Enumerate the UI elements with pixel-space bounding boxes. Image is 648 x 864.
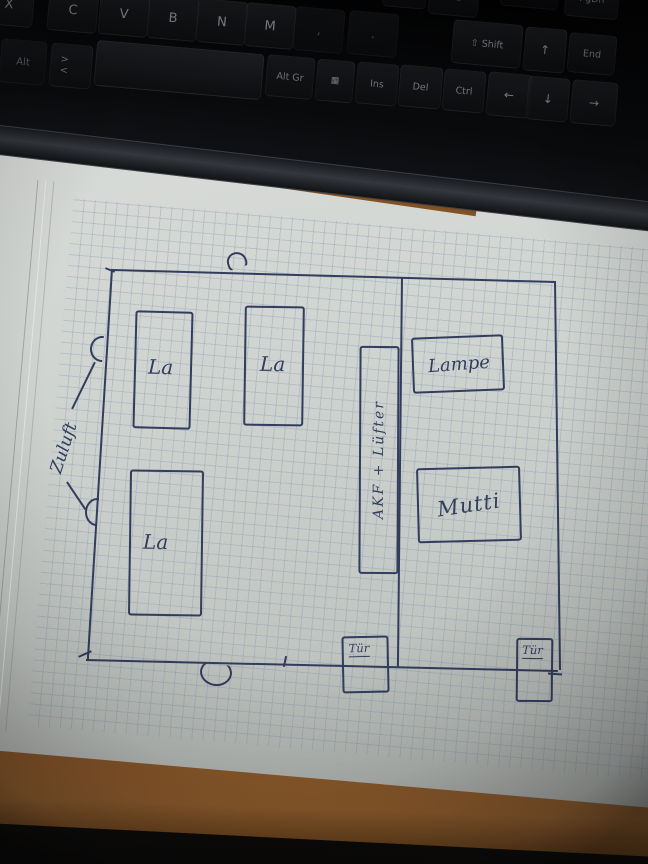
key-comma: ,: [292, 6, 346, 54]
akf-fan-label: AKF + Lüfter: [371, 400, 388, 519]
top-wall: [112, 269, 556, 283]
key-x-label: X: [4, 0, 14, 12]
key-ins-label: Ins: [370, 78, 385, 90]
key-shift-label: ⇧ Shift: [470, 37, 503, 51]
key-arrow-down: ↓: [525, 75, 571, 122]
key-arrow-up: ↑: [522, 26, 568, 73]
door-box-1: Tür: [341, 636, 389, 694]
photo-scene: Zuluft La La La AKF + Lüfter Lampe Mutti…: [0, 0, 648, 864]
key-b-label: B: [168, 10, 178, 26]
speaker-label-1: La: [148, 355, 174, 380]
key-x: X: [0, 0, 36, 28]
key-altgr-label: Alt Gr: [276, 70, 304, 83]
key-ins: Ins: [354, 61, 400, 107]
top-wall-loop: [224, 249, 249, 274]
arrow-up-icon: ↑: [539, 43, 550, 58]
key-alt: Alt: [0, 38, 48, 86]
key-altgr: Alt Gr: [264, 54, 315, 100]
key-angle-brackets: > <: [48, 42, 94, 89]
speaker-label-2: La: [260, 352, 286, 376]
supply-air-leader-lower: [66, 481, 86, 509]
arrow-left-icon: ←: [503, 88, 514, 103]
left-wall: [87, 269, 114, 659]
arrow-right-icon: →: [588, 96, 599, 111]
supply-air-vent-lower: [84, 497, 110, 527]
key-c: C: [46, 0, 100, 34]
key-ctrl: Ctrl: [441, 68, 487, 114]
bottom-wall-arrowhead: [78, 650, 92, 658]
mutti-label: Mutti: [436, 488, 502, 521]
speaker-box-2: La: [243, 306, 305, 427]
speaker-box-1: La: [132, 310, 193, 429]
key-del-label: Del: [412, 81, 429, 93]
key-a-umlaut-label: ä à: [446, 0, 462, 3]
supply-air-label: Zuluft: [40, 401, 87, 495]
less-than-glyph: <: [59, 65, 68, 77]
key-end: End: [566, 32, 617, 76]
key-end-label: End: [583, 48, 602, 61]
speaker-label-3: La: [143, 530, 169, 554]
mutti-box: Mutti: [416, 466, 522, 544]
key-shift: ⇧ Shift: [450, 19, 524, 69]
greater-than-glyph: >: [60, 54, 69, 66]
key-n: N: [195, 0, 249, 46]
key-v-label: V: [119, 6, 129, 22]
door-label-1: Tür: [349, 641, 370, 657]
key-alt-label: Alt: [16, 56, 30, 68]
key-c-label: C: [68, 2, 78, 18]
door-box-2: Tür: [516, 638, 554, 702]
key-comma-label: ,: [316, 23, 321, 37]
key-arrow-right: →: [569, 79, 619, 127]
right-wall: [554, 281, 561, 670]
speaker-box-3: La: [128, 469, 204, 616]
lamp-label: Lampe: [427, 351, 490, 376]
menu-key-icon: ▦: [330, 76, 339, 87]
key-period: .: [346, 10, 400, 58]
key-menu: ▦: [314, 58, 356, 103]
key-del: Del: [397, 64, 443, 110]
key-v: V: [97, 0, 151, 38]
supply-air-vent-upper: [89, 335, 115, 363]
key-b: B: [146, 0, 200, 42]
supply-air-leader-upper: [71, 362, 95, 410]
key-period-label: .: [370, 27, 375, 41]
arrow-down-icon: ↓: [542, 92, 553, 107]
key-n-label: N: [216, 14, 227, 30]
key-pgdn-label: PgDn: [579, 0, 605, 6]
door-label-2: Tür: [522, 643, 543, 659]
key-m: M: [243, 2, 297, 50]
key-ctrl-label: Ctrl: [455, 85, 473, 97]
lamp-box: Lampe: [411, 334, 505, 393]
akf-fan-box: AKF + Lüfter: [358, 346, 399, 574]
bottom-wall: [86, 659, 558, 672]
key-m-label: M: [264, 18, 276, 34]
